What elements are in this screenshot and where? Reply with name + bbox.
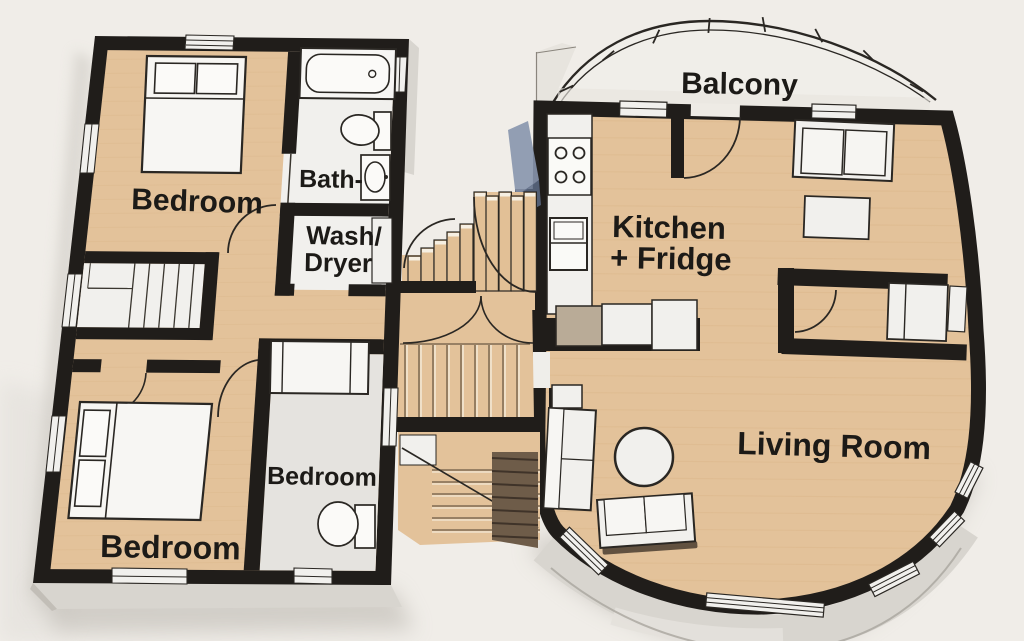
svg-text:Living Room: Living Room (737, 425, 932, 466)
svg-text:+ Fridge: + Fridge (610, 240, 732, 277)
svg-text:Dryer: Dryer (304, 247, 372, 278)
svg-text:Bedroom: Bedroom (267, 462, 377, 492)
svg-text:Balcony: Balcony (681, 67, 799, 102)
svg-text:Bath-: Bath- (299, 165, 363, 194)
svg-text:Bedroom: Bedroom (131, 183, 264, 221)
svg-text:Bedroom: Bedroom (100, 528, 241, 566)
